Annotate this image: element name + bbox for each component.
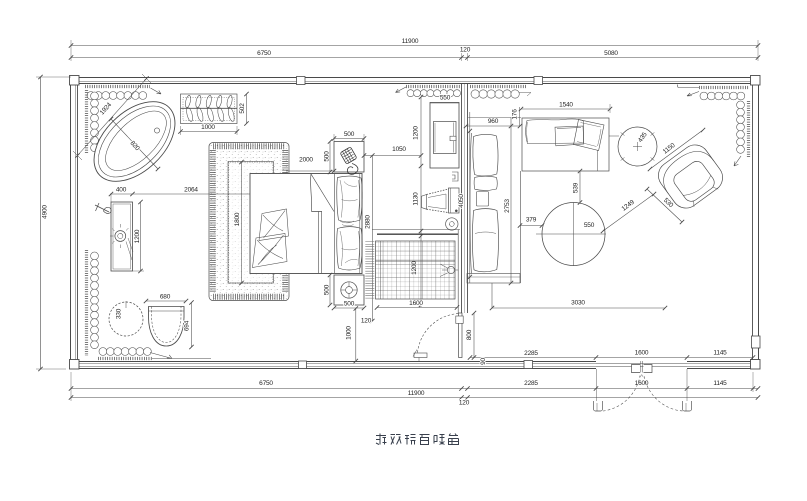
svg-text:1000: 1000 (201, 124, 215, 131)
svg-text:6750: 6750 (257, 50, 271, 57)
svg-text:3030: 3030 (571, 300, 585, 307)
svg-text:2880: 2880 (365, 215, 372, 229)
svg-text:2064: 2064 (184, 187, 198, 194)
svg-text:1800: 1800 (234, 212, 241, 226)
svg-text:539: 539 (573, 182, 580, 193)
svg-text:4900: 4900 (42, 205, 49, 219)
svg-text:90: 90 (480, 358, 487, 365)
svg-text:500: 500 (324, 284, 331, 295)
svg-text:120: 120 (460, 47, 471, 54)
svg-text:1050: 1050 (392, 146, 406, 153)
svg-text:2285: 2285 (524, 380, 538, 387)
svg-text:694: 694 (184, 320, 191, 331)
svg-text:11900: 11900 (408, 390, 425, 397)
svg-text:1200: 1200 (134, 229, 141, 243)
svg-text:550: 550 (584, 222, 595, 229)
svg-text:550: 550 (440, 95, 451, 102)
svg-text:680: 680 (160, 294, 171, 301)
svg-text:379: 379 (526, 217, 537, 224)
svg-text:330: 330 (116, 308, 123, 319)
svg-text:500: 500 (344, 131, 355, 138)
svg-text:2000: 2000 (299, 157, 313, 164)
svg-text:500: 500 (324, 151, 331, 162)
svg-text:1600: 1600 (635, 350, 649, 357)
svg-text:502: 502 (239, 103, 246, 114)
svg-text:1200: 1200 (413, 126, 420, 140)
svg-text:11900: 11900 (402, 38, 419, 45)
svg-text:5080: 5080 (604, 50, 618, 57)
svg-text:1600: 1600 (409, 300, 423, 307)
svg-text:176: 176 (512, 109, 519, 120)
svg-text:1145: 1145 (713, 380, 727, 387)
svg-text:1540: 1540 (559, 102, 573, 109)
svg-text:1130: 1130 (413, 192, 420, 206)
svg-text:4050: 4050 (458, 194, 465, 208)
svg-text:400: 400 (116, 187, 127, 194)
svg-text:2285: 2285 (524, 350, 538, 357)
svg-text:500: 500 (344, 301, 355, 308)
svg-text:2753: 2753 (504, 199, 511, 213)
svg-text:6750: 6750 (259, 380, 273, 387)
svg-text:1000: 1000 (346, 326, 353, 340)
svg-text:120: 120 (459, 400, 470, 407)
svg-text:120: 120 (361, 318, 372, 325)
svg-text:800: 800 (466, 329, 473, 340)
svg-text:960: 960 (488, 118, 499, 125)
svg-text:1145: 1145 (713, 350, 727, 357)
